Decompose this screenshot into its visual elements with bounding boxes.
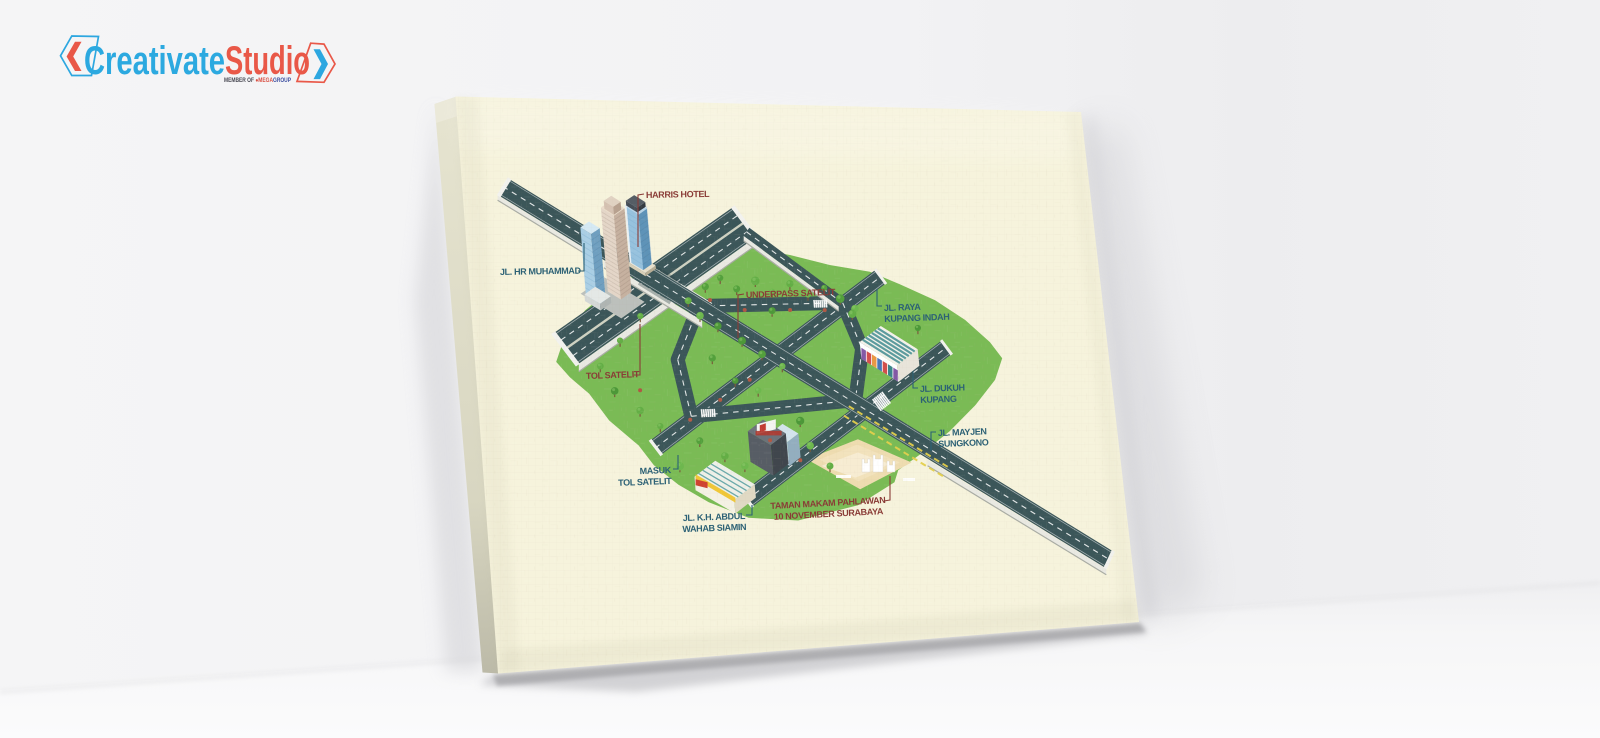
svg-text:SUNGKONO: SUNGKONO — [938, 437, 989, 449]
svg-text:KUPANG: KUPANG — [920, 394, 957, 405]
svg-text:Creativate: Creativate — [84, 39, 225, 83]
svg-text:JL. DUKUH: JL. DUKUH — [920, 382, 965, 394]
svg-text:TOL SATELIT: TOL SATELIT — [586, 369, 640, 381]
svg-text:TOL SATELIT: TOL SATELIT — [618, 476, 672, 488]
svg-text:JL. MAYJEN: JL. MAYJEN — [938, 426, 987, 438]
svg-text:MEMBER OF ●MEGAGROUP: MEMBER OF ●MEGAGROUP — [224, 78, 291, 84]
svg-text:JL. RAYA: JL. RAYA — [884, 302, 922, 313]
svg-text:Studio: Studio — [225, 39, 310, 83]
svg-text:HARRIS HOTEL: HARRIS HOTEL — [646, 189, 710, 200]
svg-text:JL. HR MUHAMMAD: JL. HR MUHAMMAD — [500, 266, 582, 277]
svg-text:MASUK: MASUK — [639, 465, 671, 476]
